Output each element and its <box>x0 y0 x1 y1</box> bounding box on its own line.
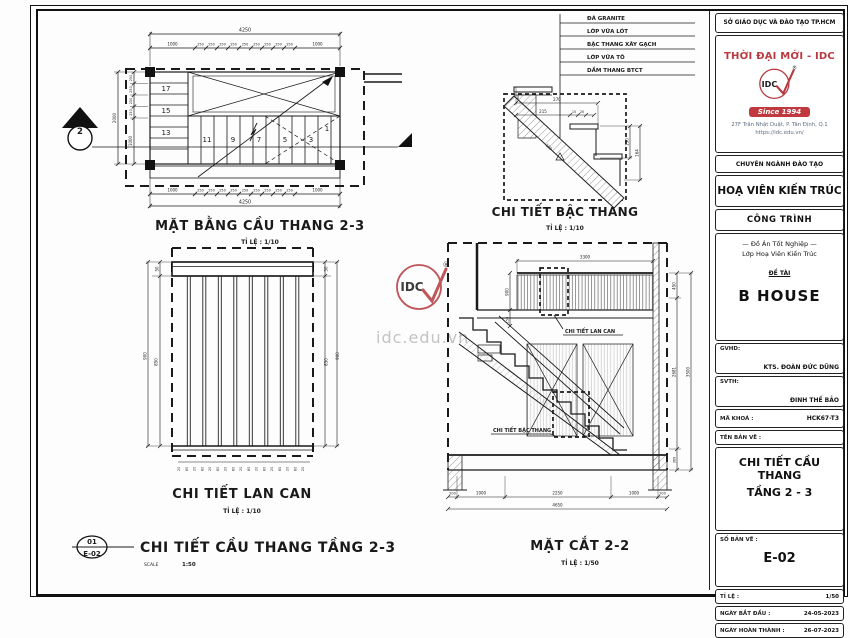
footer-scale-label: SCALE <box>144 562 159 568</box>
callout-step-label: CHI TIẾT BẬC THANG <box>493 426 551 434</box>
section-geometry <box>443 243 672 490</box>
svg-text:80: 80 <box>231 467 235 471</box>
svg-text:250: 250 <box>129 109 133 115</box>
callout-railing-label: CHI TIẾT LAN CAN <box>565 327 615 335</box>
svg-text:20: 20 <box>270 467 274 471</box>
svg-text:15: 15 <box>162 107 171 115</box>
address: 27F Trần Nhật Duật, P. Tân Định, Q.1 htt… <box>731 122 827 138</box>
svg-text:850: 850 <box>154 358 159 366</box>
svg-text:2250: 2250 <box>552 491 563 496</box>
title-block-gvhd: GVHD: KTS. ĐOÀN ĐỨC DŨNG <box>715 343 844 374</box>
svg-text:IDC: IDC <box>761 80 777 89</box>
training-text: CHUYÊN NGÀNH ĐÀO TẠO <box>736 161 823 168</box>
gvhd-label: GVHD: <box>720 346 839 352</box>
title-block-scale: TỈ LỆ : 1/50 <box>715 589 844 604</box>
date-end-label: NGÀY HOÀN THÀNH : <box>720 628 785 634</box>
svg-text:150: 150 <box>506 317 510 323</box>
svg-text:9: 9 <box>231 136 235 144</box>
svg-text:250: 250 <box>242 189 248 193</box>
date-end-value: 26-07-2023 <box>804 628 839 634</box>
svg-text:250: 250 <box>129 86 133 92</box>
svg-text:250: 250 <box>129 98 133 104</box>
svg-text:4650: 4650 <box>552 503 563 508</box>
plan-title: MẶT BẰNG CẦU THANG 2-3 <box>155 216 365 234</box>
svg-text:20: 20 <box>224 467 228 471</box>
svg-text:1000: 1000 <box>167 188 178 193</box>
step-detail-geometry <box>504 87 626 208</box>
svg-text:80: 80 <box>200 467 204 471</box>
title-block-dept: SỞ GIÁO DỤC VÀ ĐÀO TẠO TP.HCM <box>715 13 844 33</box>
address-line1: 27F Trần Nhật Duật, P. Tân Định, Q.1 <box>731 122 827 130</box>
section-marker-right-icon <box>398 133 412 147</box>
svg-text:17: 17 <box>162 85 171 93</box>
svg-text:BẬC THANG XÂY GẠCH: BẬC THANG XÂY GẠCH <box>587 41 657 48</box>
svg-text:1000: 1000 <box>128 135 133 146</box>
svg-text:1000: 1000 <box>629 491 640 496</box>
footer-title-text: CHI TIẾT CẦU THANG TẦNG 2-3 <box>140 537 396 556</box>
detail-number: 01 <box>87 538 97 546</box>
svg-text:1000: 1000 <box>312 188 323 193</box>
svg-text:ĐÁ GRANITE: ĐÁ GRANITE <box>587 15 625 22</box>
svg-text:80: 80 <box>278 467 282 471</box>
address-line2[interactable]: https://idc.edu.vn/ <box>731 130 827 138</box>
title-block-project-header: CÔNG TRÌNH <box>715 209 844 231</box>
svg-text:369: 369 <box>673 457 677 463</box>
svg-text:250: 250 <box>264 43 270 47</box>
idc-logo-icon: IDC ® <box>754 62 806 104</box>
railing-geometry <box>172 248 313 456</box>
title-block-date-end: NGÀY HOÀN THÀNH : 26-07-2023 <box>715 623 844 638</box>
section-drawing: CHI TIẾT LAN CAN CHI TIẾT BẬC THANG 3300… <box>415 232 711 577</box>
topic-label: ĐỀ TÀI <box>769 270 791 277</box>
svg-text:20: 20 <box>239 467 243 471</box>
svg-text:20: 20 <box>286 467 290 471</box>
svg-text:20: 20 <box>255 467 259 471</box>
section-marker-number: 2 <box>77 127 83 137</box>
title-block-sheet-name-label: TÊN BẢN VẼ : <box>715 430 844 445</box>
svg-text:3500: 3500 <box>686 366 691 377</box>
project-header-text: CÔNG TRÌNH <box>747 215 812 225</box>
plan-geometry: 2 <box>62 67 412 186</box>
svg-text:250: 250 <box>253 189 259 193</box>
registered-mark-icon: ® <box>792 64 797 71</box>
svg-text:2000: 2000 <box>112 112 117 123</box>
svg-text:250: 250 <box>208 43 214 47</box>
svg-text:DẦM THANG BTCT: DẦM THANG BTCT <box>587 65 643 74</box>
svg-text:20: 20 <box>580 110 584 114</box>
topic-value: B HOUSE <box>738 287 820 305</box>
svg-text:200: 200 <box>659 492 665 496</box>
code-value: HCK67-T3 <box>807 415 839 422</box>
scale-label: TỈ LỆ : <box>720 594 739 600</box>
plan-drawing: 2 17 15 13 11 9 7 5 3 1 4250 1000 250 25… <box>50 14 430 249</box>
svg-text:1: 1 <box>325 125 329 133</box>
svg-text:20: 20 <box>301 467 305 471</box>
svg-text:250: 250 <box>275 43 281 47</box>
section-marker-left-icon <box>62 107 98 128</box>
svg-text:3300: 3300 <box>580 255 591 260</box>
svg-text:200: 200 <box>449 492 455 496</box>
svg-text:80: 80 <box>262 467 266 471</box>
title-block-sheet-name: CHI TIẾT CẦU THANG TẦNG 2 - 3 <box>715 447 844 531</box>
date-start-value: 24-05-2023 <box>804 611 839 617</box>
project-line2: Lớp Hoạ Viên Kiến Trúc <box>742 250 817 258</box>
title-block-sheet-no: SỐ BẢN VẼ : E-02 <box>715 533 844 587</box>
svg-text:250: 250 <box>286 189 292 193</box>
svg-text:4250: 4250 <box>239 28 251 34</box>
svg-text:250: 250 <box>264 189 270 193</box>
svg-text:80: 80 <box>216 467 220 471</box>
plan-dimensions-top: 4250 1000 250 250 250 250 250 250 250 25… <box>148 28 342 67</box>
sheet-no-value: E-02 <box>720 551 839 566</box>
svg-text:1000: 1000 <box>312 42 323 47</box>
drawing-sheet: { "watermark": { "url": "idc.edu.vn" }, … <box>0 0 850 601</box>
title-block-training: CHUYÊN NGÀNH ĐÀO TẠO <box>715 155 844 173</box>
svg-text:7: 7 <box>257 136 261 144</box>
svg-text:215: 215 <box>539 109 547 114</box>
sheet-no-label: SỐ BẢN VẼ : <box>720 537 839 543</box>
svg-text:250: 250 <box>197 43 203 47</box>
svg-text:2681: 2681 <box>672 366 677 377</box>
svg-text:80: 80 <box>185 467 189 471</box>
title-block-date-start: NGÀY BẮT ĐẦU : 24-05-2023 <box>715 606 844 621</box>
date-start-label: NGÀY BẮT ĐẦU : <box>720 611 770 617</box>
svg-text:900: 900 <box>335 352 340 360</box>
step-detail-drawing: ĐÁ GRANITE LỚP VỮA LÓT BẬC THANG XÂY GẠC… <box>490 8 700 236</box>
gvhd-value: KTS. ĐOÀN ĐỨC DŨNG <box>720 364 839 371</box>
svg-text:50: 50 <box>155 266 160 272</box>
svg-text:50: 50 <box>324 266 329 272</box>
svg-text:250: 250 <box>129 75 133 81</box>
svg-text:900: 900 <box>143 352 148 360</box>
svg-text:5: 5 <box>283 136 287 144</box>
title-block-svth: SVTH: ĐINH THẾ BẢO <box>715 376 844 407</box>
project-line1: — Đồ Án Tốt Nghiệp — <box>742 240 816 248</box>
svg-text:LỚP VỮA LÓT: LỚP VỮA LÓT <box>587 28 628 35</box>
svg-text:1000: 1000 <box>167 42 178 47</box>
sheet-name-line1: CHI TIẾT CẦU THANG <box>716 456 843 482</box>
svg-text:250: 250 <box>286 43 292 47</box>
material-notes: ĐÁ GRANITE LỚP VỮA LÓT BẬC THANG XÂY GẠC… <box>560 14 695 138</box>
footer-drawing-title: 01 E-02 CHI TIẾT CẦU THANG TẦNG 2-3 SCAL… <box>60 530 390 582</box>
sheet-name-line2: TẦNG 2 - 3 <box>747 486 813 499</box>
svg-text:250: 250 <box>230 189 236 193</box>
scale-value: 1/50 <box>826 594 840 600</box>
dept-text: SỞ GIÁO DỤC VÀ ĐÀO TẠO TP.HCM <box>724 20 836 26</box>
svg-text:250: 250 <box>197 189 203 193</box>
title-block-major: HOẠ VIÊN KIẾN TRÚC <box>715 175 844 207</box>
svg-text:20: 20 <box>177 467 181 471</box>
title-block-project: — Đồ Án Tốt Nghiệp — Lớp Hoạ Viên Kiến T… <box>715 233 844 341</box>
svg-text:250: 250 <box>219 189 225 193</box>
detail-sheet: E-02 <box>83 550 101 558</box>
step-detail-title: CHI TIẾT BẬC THANG <box>492 203 639 219</box>
sheet-name-label: TÊN BẢN VẼ : <box>720 435 761 441</box>
footer-scale-value: 1:50 <box>182 562 196 568</box>
since-badge: Since 1994 <box>749 107 810 117</box>
svg-text:3: 3 <box>309 136 313 144</box>
svg-text:11: 11 <box>203 136 212 144</box>
title-block: SỞ GIÁO DỤC VÀ ĐÀO TẠO TP.HCM THỜI ĐẠI M… <box>713 11 846 594</box>
svg-text:20: 20 <box>193 467 197 471</box>
svg-text:450: 450 <box>672 282 677 290</box>
section-scale: TỈ LỆ : 1/50 <box>561 559 599 567</box>
code-label: MÃ KHOÁ : <box>720 416 753 422</box>
svg-text:80: 80 <box>293 467 297 471</box>
svg-text:1000: 1000 <box>476 491 487 496</box>
railing-scale: TỈ LỆ : 1/10 <box>223 507 261 515</box>
section-title: MẶT CẮT 2-2 <box>530 537 629 554</box>
plan-dimensions-left: 250 250 250 250 1000 2000 <box>112 70 148 166</box>
svth-value: ĐINH THẾ BẢO <box>720 397 839 404</box>
svg-text:250: 250 <box>208 189 214 193</box>
svg-text:13: 13 <box>162 129 171 137</box>
railing-title: CHI TIẾT LAN CAN <box>172 485 312 502</box>
svg-text:150: 150 <box>625 138 630 146</box>
step-detail-scale: TỈ LỆ : 1/10 <box>546 224 584 232</box>
svg-text:LỚP VỮA TÔ: LỚP VỮA TÔ <box>587 54 625 61</box>
plan-dimensions-bottom: 1000 250 250 250 250 250 250 250 250 250… <box>148 166 342 208</box>
svg-text:164: 164 <box>635 149 640 157</box>
svg-text:270: 270 <box>553 97 561 102</box>
svg-text:250: 250 <box>219 43 225 47</box>
brand-text: THỜI ĐẠI MỚI - IDC <box>724 51 835 62</box>
svg-text:850: 850 <box>324 358 329 366</box>
svg-text:250: 250 <box>275 189 281 193</box>
svg-text:4250: 4250 <box>239 200 251 206</box>
svg-text:20: 20 <box>208 467 212 471</box>
svg-text:250: 250 <box>242 43 248 47</box>
major-text: HOẠ VIÊN KIẾN TRÚC <box>717 185 841 197</box>
title-block-logo: THỜI ĐẠI MỚI - IDC IDC ® Since 1994 27F … <box>715 35 844 153</box>
svth-label: SVTH: <box>720 379 839 385</box>
railing-detail-drawing: 50 850 900 50 850 900 20 80 20 80 20 80 … <box>140 240 370 532</box>
svg-text:250: 250 <box>230 43 236 47</box>
svg-text:15: 15 <box>572 110 576 114</box>
svg-text:250: 250 <box>253 43 259 47</box>
svg-text:900: 900 <box>505 288 510 296</box>
svg-text:80: 80 <box>247 467 251 471</box>
title-block-code: MÃ KHOÁ : HCK67-T3 <box>715 409 844 428</box>
